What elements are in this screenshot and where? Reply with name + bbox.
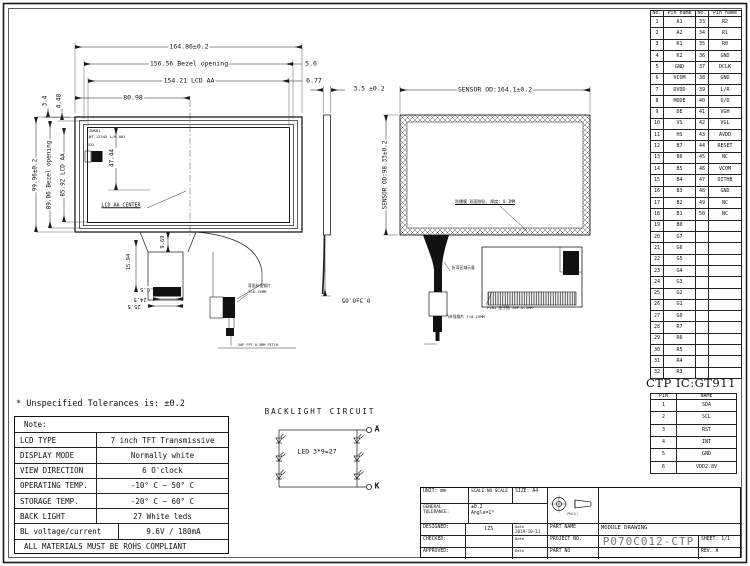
pin-table: No. Pin name No. Pin name 1A133R22A234R1… (650, 10, 742, 379)
table-cell (696, 345, 709, 356)
table-cell: 10 (651, 118, 664, 129)
table-cell: 31 (651, 356, 664, 367)
part-no-value (599, 548, 699, 559)
stiffener-note-2: T=0.15MM (248, 290, 266, 294)
col-header: Pin name (709, 11, 742, 17)
tail-dim-5: 25.5 (126, 303, 141, 309)
table-cell: DVDD (664, 84, 696, 95)
table-cell: G0 (664, 311, 696, 322)
table-cell: 19 (651, 220, 664, 231)
table-row: 27G0 (651, 311, 742, 322)
table-cell: 40 (696, 96, 709, 107)
table-cell: G7 (664, 231, 696, 242)
date-caption: Date (515, 549, 545, 554)
table-cell (709, 311, 742, 322)
note-footer-row: ALL MATERIALS MUST BE ROHS COMPLIANT (15, 539, 228, 554)
table-cell: HS (664, 130, 696, 141)
table-row: 6VDD2.8V (651, 461, 737, 473)
part-name-label: PART NAME (548, 524, 599, 536)
table-cell: GND (664, 62, 696, 73)
table-cell: 2 (651, 412, 677, 424)
table-row: 22G5 (651, 254, 742, 265)
tail-note: 折弯区域示意 (452, 266, 475, 270)
ctp-table-title: CTP IC:GT911 (646, 376, 736, 390)
table-cell: 5 (651, 62, 664, 73)
note-label: BL voltage/current (15, 524, 119, 538)
front-tiny-note-1: INK01 (89, 129, 100, 133)
table-cell: NC (709, 198, 742, 209)
aa-center-label: LCD AA CENTER (100, 203, 141, 209)
note-row: VIEW DIRECTION6 O'clock (15, 463, 228, 478)
dim-width-aa: 154.21 LCD AA (163, 77, 216, 84)
dim-aa-center: 47.44 (110, 148, 117, 168)
front-fpc-tail (140, 232, 262, 336)
note-label: OPERATING TEMP. (15, 479, 97, 493)
table-row: 26G1 (651, 299, 742, 310)
note-row: BACK LIGHT27 White leds (15, 508, 228, 523)
table-cell: R6 (664, 333, 696, 344)
table-cell: 16 (651, 186, 664, 197)
ctp-table: PIN NAME 1SDA2SCL3RST4INT5GND6VDD2.8V (650, 393, 737, 474)
table-cell: 48 (696, 186, 709, 197)
table-row: 1SDA (651, 400, 737, 412)
table-cell: R5 (664, 345, 696, 356)
table-cell: A1 (664, 17, 696, 28)
dim-left-top-2: 4.48 (57, 93, 64, 109)
table-cell: 36 (696, 50, 709, 61)
table-row: 5GND (651, 449, 737, 461)
dim-left-top-1: 3.4 (43, 95, 50, 108)
table-cell: 11 (651, 130, 664, 141)
table-cell: 24 (651, 277, 664, 288)
approved-date-cell: Date (513, 548, 548, 559)
table-cell: 12 (651, 141, 664, 152)
table-row: 9DE41VGH (651, 107, 742, 118)
table-cell: 14 (651, 164, 664, 175)
note-label: LCD TYPE (15, 433, 97, 447)
table-cell: GND (709, 186, 742, 197)
table-cell: 23 (651, 265, 664, 276)
note-value: Normally white (97, 451, 228, 460)
table-cell: 49 (696, 198, 709, 209)
table-row: 2SCL (651, 412, 737, 424)
table-cell: 18 (651, 209, 664, 220)
table-cell: 6 (651, 73, 664, 84)
table-cell (696, 311, 709, 322)
table-cell: NC (709, 152, 742, 163)
part-no-label: PART NO (548, 548, 599, 559)
table-cell: GND (677, 449, 737, 461)
table-row: 8MODE40U/D (651, 96, 742, 107)
connector-detail (482, 247, 582, 307)
table-cell: B0 (664, 220, 696, 231)
table-cell (709, 322, 742, 333)
table-cell: B5 (664, 164, 696, 175)
table-cell: B7 (664, 141, 696, 152)
dim-sensor-height: SENSOR OD:98.33±0.2 (383, 140, 390, 211)
table-cell: 28 (651, 322, 664, 333)
table-cell: R4 (664, 356, 696, 367)
table-cell (696, 231, 709, 242)
projection-label: PROJ() (567, 513, 579, 517)
table-cell (709, 333, 742, 344)
table-cell: 33 (696, 17, 709, 28)
table-cell: G6 (664, 243, 696, 254)
table-cell: VCOM (709, 164, 742, 175)
table-cell: L/R (709, 84, 742, 95)
tail-dim-2: 15.94 (126, 253, 132, 272)
tail-dim-3: 0.5 (139, 286, 151, 292)
table-cell (696, 288, 709, 299)
backlight-title: BACKLIGHT CIRCUIT (264, 408, 377, 416)
table-cell: 21 (651, 243, 664, 254)
dim-right-aa: 6.77 (305, 77, 323, 84)
table-row: 23G4 (651, 265, 742, 276)
table-cell: 35 (696, 39, 709, 50)
scale-cell: SCALE:NO SCALE (469, 488, 513, 504)
note-value: 6 O'clock (97, 466, 228, 475)
col-header: Pin name (664, 11, 696, 17)
table-cell: 20 (651, 231, 664, 242)
table-cell (696, 265, 709, 276)
table-cell (696, 299, 709, 310)
table-cell: 43 (696, 130, 709, 141)
rev-label: REV. A (699, 548, 742, 559)
table-row: 11HS43AVDD (651, 130, 742, 141)
table-cell: G3 (664, 277, 696, 288)
table-row: 16B348GND (651, 186, 742, 197)
table-cell: 15 (651, 175, 664, 186)
table-row: 4K236GND (651, 50, 742, 61)
table-cell: B1 (664, 209, 696, 220)
table-cell: K1 (664, 39, 696, 50)
table-cell: 1 (651, 17, 664, 28)
table-cell (709, 288, 742, 299)
table-cell: DCLK (709, 62, 742, 73)
tolerance-values: ±0.2 Angle=1° (469, 504, 548, 524)
table-cell: U/D (709, 96, 742, 107)
table-cell: DITHB (709, 175, 742, 186)
title-block: UNIT: mm SCALE:NO SCALE SIZE: A4 GENERAL… (420, 487, 741, 558)
designed-label: DESIGNED: (421, 524, 466, 536)
dim-height-bezel: 89.06 Bezel opening (47, 140, 54, 211)
tail-dim-4: 24.5 (132, 296, 147, 302)
terminal-k-label: K (374, 483, 381, 492)
table-row: 21G6 (651, 243, 742, 254)
table-row: 13B645NC (651, 152, 742, 163)
table-cell: R1 (709, 28, 742, 39)
table-cell: 25 (651, 288, 664, 299)
project-no-label: PROJECT NO. (548, 536, 599, 548)
table-cell: 5 (651, 449, 677, 461)
table-row: 3K135R0 (651, 39, 742, 50)
table-row: 29R6 (651, 333, 742, 344)
angle-value: Angle=1° (471, 511, 545, 517)
size-cell: SIZE: A4 (513, 488, 548, 504)
table-cell: VGL (709, 118, 742, 129)
note-table-title-row: Note: (15, 417, 228, 432)
table-cell: GND (709, 50, 742, 61)
table-row: 18B150NC (651, 209, 742, 220)
connector-note: 50P FPC 0.5MM PITCH (238, 344, 278, 348)
table-row: 25G2 (651, 288, 742, 299)
table-cell: 3 (651, 39, 664, 50)
note-value: -10° C ~ 50° C (97, 481, 228, 490)
note-footer: ALL MATERIALS MUST BE ROHS COMPLIANT (24, 542, 187, 551)
table-cell: RESET (709, 141, 742, 152)
table-cell (709, 243, 742, 254)
table-cell (709, 277, 742, 288)
dim-height-outline: 99.96±0.2 (33, 158, 40, 193)
table-cell (696, 277, 709, 288)
table-cell: 50 (696, 209, 709, 220)
table-row: 19B0 (651, 220, 742, 231)
table-row: 3RST (651, 424, 737, 436)
approved-value (466, 548, 513, 559)
table-cell: INT (677, 436, 737, 448)
project-no-value: P070C012-CTP (599, 536, 699, 548)
table-row: 14B546VCOM (651, 164, 742, 175)
backlight-circuit-lines (276, 427, 372, 489)
table-cell: 34 (696, 28, 709, 39)
table-cell: 30 (651, 345, 664, 356)
table-row: 6VCOM38GND (651, 73, 742, 84)
table-cell: G5 (664, 254, 696, 265)
table-cell: G4 (664, 265, 696, 276)
note-header: Note: (24, 420, 47, 429)
dim-height-aa: 85.92 LCD AA (61, 152, 68, 197)
sensor-stiffener-note: 补强钢片 T=0.15MM (449, 315, 485, 319)
note-value: 9.6V / 180mA (119, 527, 228, 536)
table-cell: R2 (709, 17, 742, 28)
table-cell: 29 (651, 333, 664, 344)
note-row: LCD TYPE7 inch TFT Transmissive (15, 432, 228, 447)
table-cell: K2 (664, 50, 696, 61)
table-cell: 8 (651, 96, 664, 107)
table-row: 5GND37DCLK (651, 62, 742, 73)
table-cell: 27 (651, 311, 664, 322)
general-tolerance-label: GENERAL TOLERANCE: (421, 504, 469, 524)
dim-width-bezel: 156.56 Bezel opening (149, 60, 229, 67)
table-row: 28R7 (651, 322, 742, 333)
table-row: 20G7 (651, 231, 742, 242)
table-row: 30R5 (651, 345, 742, 356)
table-cell: GND (709, 73, 742, 84)
table-row: 2A234R1 (651, 28, 742, 39)
table-cell: G2 (664, 288, 696, 299)
table-cell: R7 (664, 322, 696, 333)
note-value: -20° C ~ 60° C (97, 497, 228, 506)
table-row: 12B744RESET (651, 141, 742, 152)
designed-value: CZS (466, 524, 513, 536)
dim-gap: 0.3±0.05 (341, 296, 372, 303)
front-tiny-note-2: WT.12345 L/N-001 (89, 135, 126, 139)
part-name-value: MODULE DRAWING (599, 524, 742, 536)
stiffener-note-1: 背面补强钢片 (248, 284, 271, 288)
engineering-drawing-sheet: 164.86±0.2 156.56 Bezel opening 154.21 L… (0, 0, 750, 566)
table-cell: 46 (696, 164, 709, 175)
backlight-led-label: LED 3*9=27 (296, 448, 337, 455)
table-cell (709, 356, 742, 367)
table-row: 31R4 (651, 356, 742, 367)
table-cell (709, 254, 742, 265)
table-cell: 9 (651, 107, 664, 118)
dim-center-offset: 80.98 (122, 94, 144, 101)
table-cell (696, 243, 709, 254)
table-cell: NC (709, 209, 742, 220)
table-cell: 47 (696, 175, 709, 186)
table-cell: A2 (664, 28, 696, 39)
terminal-a-label: A (374, 426, 381, 435)
unit-cell: UNIT: mm (421, 488, 469, 504)
note-row: DISPLAY MODENormally white (15, 447, 228, 462)
table-row: 10VS42VGL (651, 118, 742, 129)
table-row: 15B447DITHB (651, 175, 742, 186)
adhesive-note: 防爆膜 双面胶贴, 厚度: 0.1MM (455, 200, 515, 204)
table-cell: B6 (664, 152, 696, 163)
table-cell: 45 (696, 152, 709, 163)
dim-right-top: 5.6 (304, 60, 318, 67)
table-cell: B3 (664, 186, 696, 197)
date-value: 2019-10-11 (515, 529, 545, 534)
table-cell: SCL (677, 412, 737, 424)
table-row: 7DVDD39L/R (651, 84, 742, 95)
table-cell: 4 (651, 50, 664, 61)
table-cell: VGH (709, 107, 742, 118)
table-cell (709, 265, 742, 276)
tolerance-note: * Unspecified Tolerances is: ±0.2 (16, 399, 185, 409)
note-table: Note: LCD TYPE7 inch TFT Transmissive DI… (14, 416, 229, 554)
table-cell: 38 (696, 73, 709, 84)
tail-dim-1: 9.69 (160, 234, 166, 249)
title-block-blank-cell (599, 488, 742, 524)
designed-date-cell: Date 2019-10-11 (513, 524, 548, 536)
table-cell: 41 (696, 107, 709, 118)
table-cell (709, 220, 742, 231)
table-cell: 13 (651, 152, 664, 163)
table-cell: 17 (651, 198, 664, 209)
table-cell (696, 220, 709, 231)
table-cell: B2 (664, 198, 696, 209)
note-row: STORAGE TEMP.-20° C ~ 60° C (15, 493, 228, 508)
table-cell: 3 (651, 424, 677, 436)
table-cell: RST (677, 424, 737, 436)
table-cell: 22 (651, 254, 664, 265)
dim-width-outline: 164.86±0.2 (168, 43, 209, 50)
note-label: VIEW DIRECTION (15, 464, 97, 478)
table-cell (696, 333, 709, 344)
note-row: OPERATING TEMP.-10° C ~ 50° C (15, 478, 228, 493)
note-value: 7 inch TFT Transmissive (97, 436, 228, 445)
projection-cell: PROJ() (548, 488, 599, 524)
table-cell: 26 (651, 299, 664, 310)
front-tiny-note-3: XXX (88, 144, 94, 148)
table-row: 17B249NC (651, 198, 742, 209)
table-cell: AVDD (709, 130, 742, 141)
table-cell: 2 (651, 28, 664, 39)
table-cell: B4 (664, 175, 696, 186)
table-cell: 37 (696, 62, 709, 73)
table-cell (696, 254, 709, 265)
checked-date-cell: Date (513, 536, 548, 548)
note-label: BACK LIGHT (15, 509, 97, 523)
table-cell: 4 (651, 436, 677, 448)
detail-note: PIN1 金手指 50P-0.5MM (487, 306, 533, 310)
table-cell (709, 299, 742, 310)
table-cell: SDA (677, 400, 737, 412)
note-label: STORAGE TEMP. (15, 494, 97, 508)
table-cell: VDD2.8V (677, 461, 737, 473)
table-cell (696, 322, 709, 333)
dim-sensor-width: SENSOR OD:164.1±0.2 (457, 86, 533, 93)
side-view-outline (323, 115, 331, 294)
date-caption: Date (515, 537, 545, 542)
table-cell (696, 356, 709, 367)
approved-label: APPROVED: (421, 548, 466, 559)
table-cell: R0 (709, 39, 742, 50)
checked-label: CHECKED: (421, 536, 466, 548)
table-cell (709, 231, 742, 242)
first-angle-projection-icon (550, 495, 596, 513)
note-row: BL voltage/current9.6V / 180mA (15, 523, 228, 538)
table-cell: G1 (664, 299, 696, 310)
dim-thickness: 3.5 ±0.2 (352, 85, 385, 92)
note-label: DISPLAY MODE (15, 448, 97, 462)
table-cell: 39 (696, 84, 709, 95)
note-value: 27 White leds (97, 512, 228, 521)
sheet-label: SHEET: 1/1 (699, 536, 742, 548)
table-row: 1A133R2 (651, 17, 742, 28)
table-cell: MODE (664, 96, 696, 107)
table-cell: DE (664, 107, 696, 118)
table-cell: 1 (651, 400, 677, 412)
table-cell: VS (664, 118, 696, 129)
table-row: 4INT (651, 436, 737, 448)
table-row: 24G3 (651, 277, 742, 288)
table-cell: VCOM (664, 73, 696, 84)
table-cell: 44 (696, 141, 709, 152)
table-cell: 6 (651, 461, 677, 473)
checked-value (466, 536, 513, 548)
table-cell: 42 (696, 118, 709, 129)
table-cell: 7 (651, 84, 664, 95)
table-cell (709, 345, 742, 356)
